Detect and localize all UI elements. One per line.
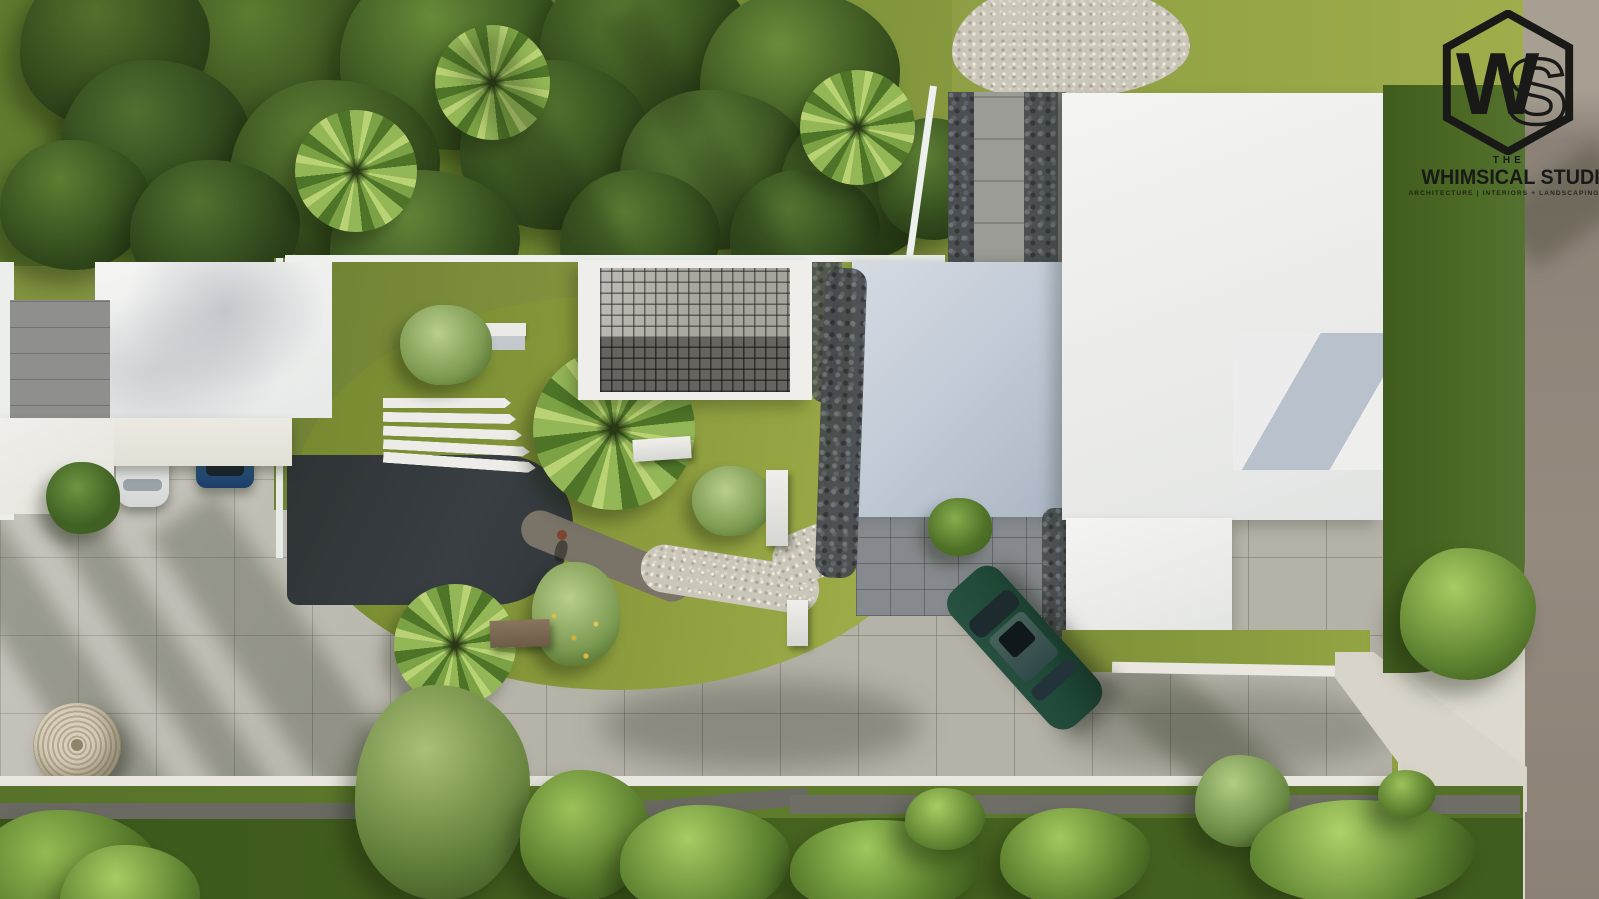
palm-tree: [295, 110, 417, 232]
sunlit-tree: [620, 805, 790, 899]
tree: [0, 140, 150, 270]
white-car-windshield: [123, 479, 162, 491]
white-bench: [632, 436, 691, 462]
pebble-strip: [948, 92, 974, 264]
sunlit-tree: [1250, 800, 1475, 899]
pergola-roof: [578, 260, 812, 400]
logo-tagline: ARCHITECTURE | INTERIORS + LANDSCAPING: [1408, 190, 1599, 197]
logo-name: WHIMSICAL STUDIO: [1421, 166, 1588, 190]
studio-logo: W S THE WHIMSICAL STUDIO ARCHITECTURE | …: [1408, 0, 1599, 218]
garden-tree: [400, 305, 492, 385]
walkway-pavers: [974, 92, 1024, 264]
pergola-grid-upper: [600, 268, 790, 338]
sunlit-tree: [1400, 548, 1536, 680]
gray-terrace: [10, 300, 110, 432]
hedge-row: [0, 520, 1599, 899]
sunlit-tree: [1000, 808, 1150, 899]
left-house-roof: [95, 262, 332, 418]
aerial-site-render: W S THE WHIMSICAL STUDIO ARCHITECTURE | …: [0, 0, 1599, 899]
main-house-roof-notch-shadow: [1233, 333, 1385, 470]
pavilion-roof: [852, 262, 1082, 517]
monogram-s: S: [1506, 39, 1568, 143]
sunlit-tree: [355, 685, 530, 899]
stone-walkway: [948, 92, 1066, 264]
sunlit-tree: [905, 788, 985, 850]
pergola-grid-lower: [600, 338, 790, 392]
palm-tree: [800, 70, 915, 185]
pebble-strip: [1024, 92, 1058, 264]
ws-monogram: W S: [1438, 10, 1578, 155]
terrace-step: [383, 398, 511, 408]
logo-the: THE: [1408, 155, 1599, 166]
